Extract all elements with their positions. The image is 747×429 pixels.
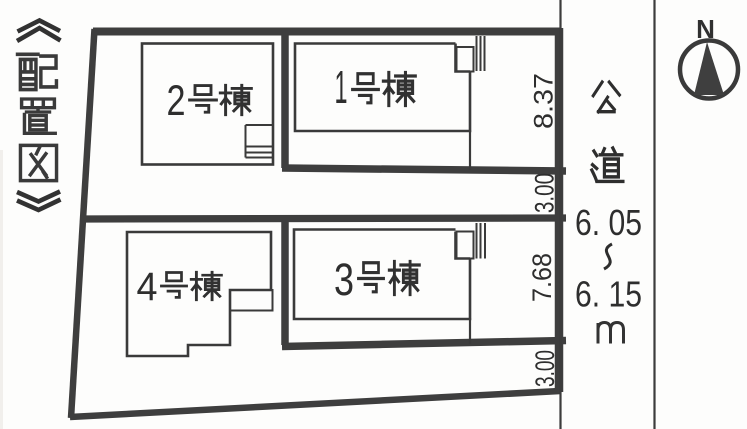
svg-text:3: 3 <box>334 254 354 305</box>
svg-text:2: 2 <box>167 77 186 125</box>
svg-text:8.37: 8.37 <box>529 73 559 129</box>
svg-text:6. 15: 6. 15 <box>575 274 642 315</box>
svg-text:4: 4 <box>137 265 158 309</box>
svg-text:3.00: 3.00 <box>530 350 560 387</box>
svg-text:1: 1 <box>335 61 348 113</box>
svg-text:7.68: 7.68 <box>527 253 557 302</box>
svg-text:3.00: 3.00 <box>530 173 560 213</box>
svg-text:6. 05: 6. 05 <box>575 202 642 243</box>
